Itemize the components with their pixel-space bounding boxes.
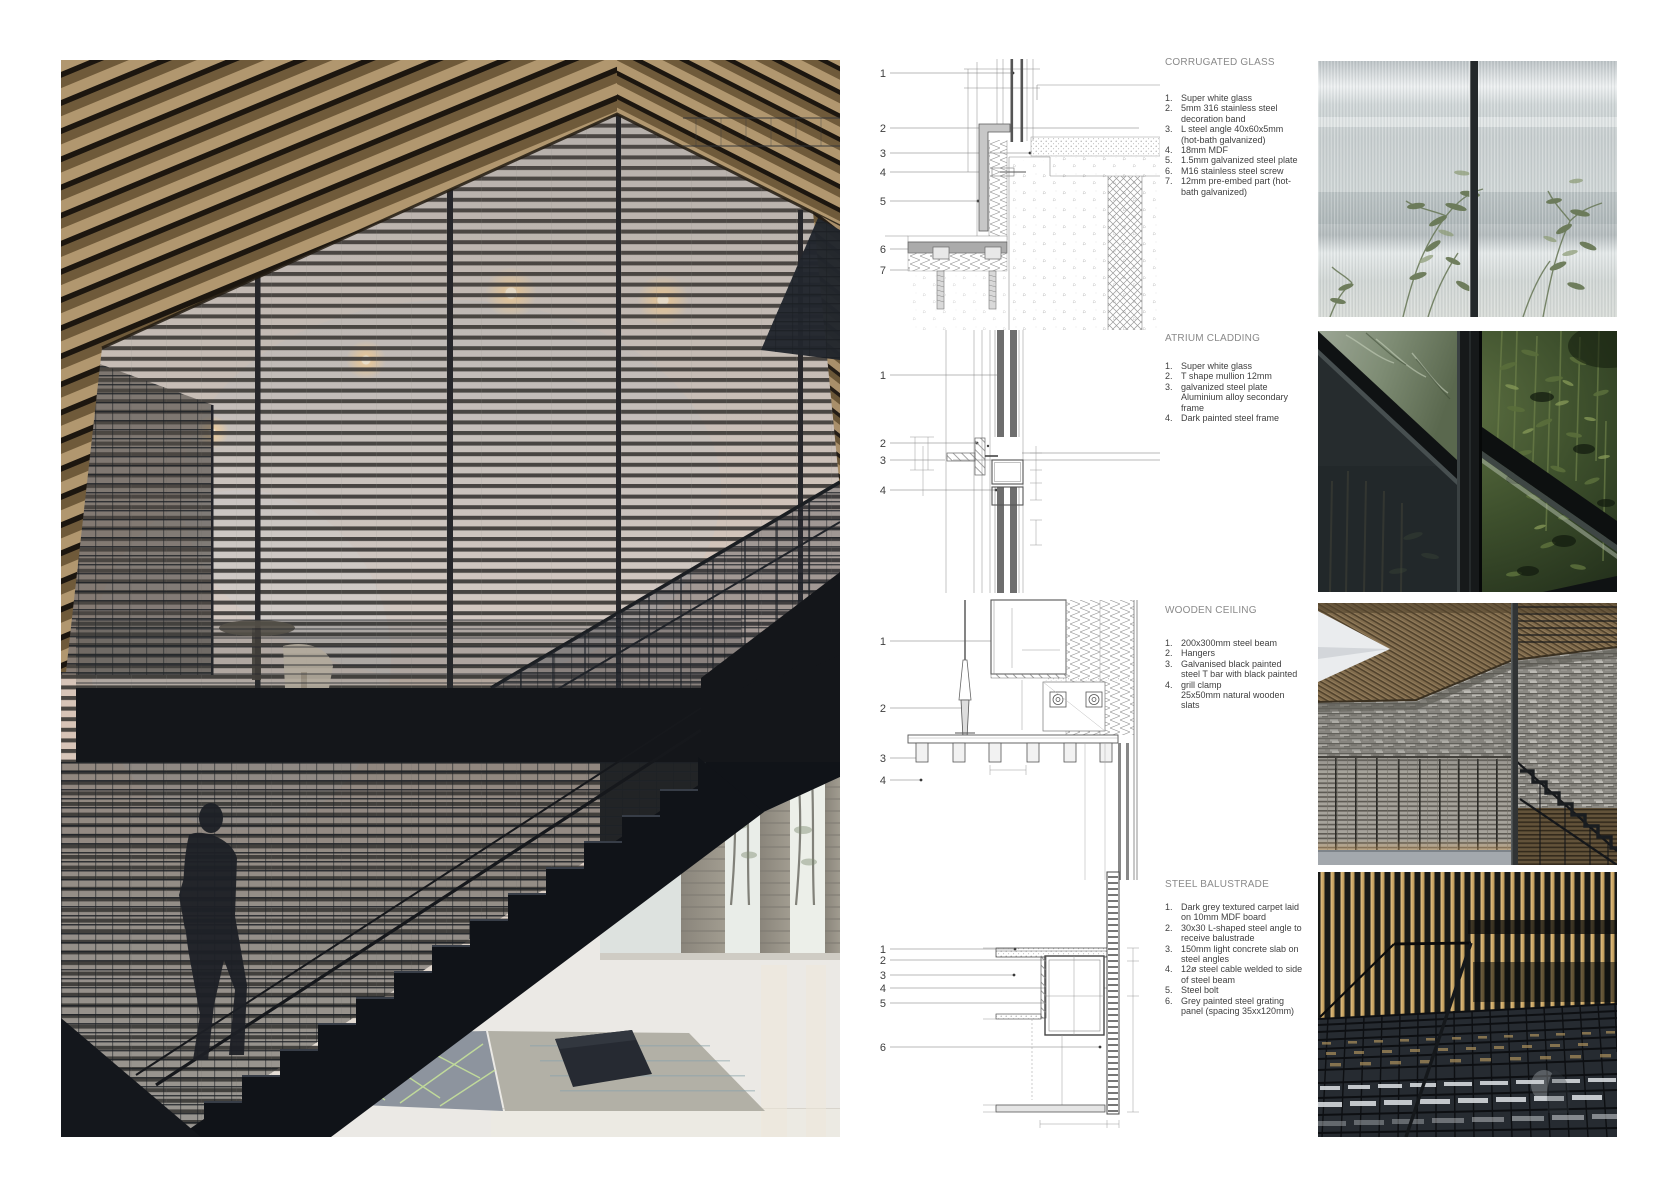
svg-text:3: 3 [880,455,886,467]
svg-text:6: 6 [880,244,886,256]
svg-text:4: 4 [880,775,886,787]
svg-text:6: 6 [880,1042,886,1054]
svg-text:4: 4 [880,485,886,497]
svg-text:2: 2 [880,955,886,967]
svg-text:5: 5 [880,196,886,208]
svg-text:2: 2 [880,438,886,450]
svg-text:3: 3 [880,970,886,982]
svg-text:7: 7 [880,265,886,277]
svg-text:4: 4 [880,983,886,995]
svg-text:1: 1 [880,68,886,80]
svg-text:1: 1 [880,636,886,648]
svg-text:5: 5 [880,998,886,1010]
svg-text:2: 2 [880,703,886,715]
svg-text:2: 2 [880,123,886,135]
svg-text:4: 4 [880,167,886,179]
svg-text:3: 3 [880,753,886,765]
svg-text:1: 1 [880,370,886,382]
svg-text:3: 3 [880,148,886,160]
